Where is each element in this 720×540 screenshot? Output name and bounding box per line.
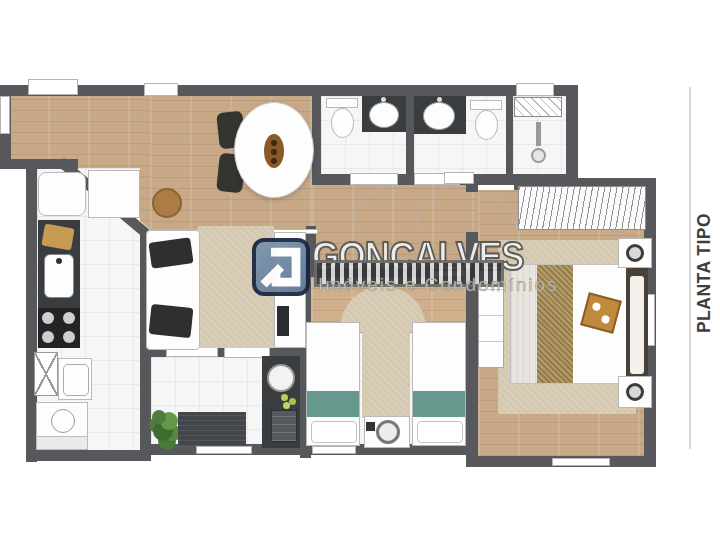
washer [36, 402, 88, 438]
shower-rod [536, 122, 541, 146]
watermark-subtitle: Imóveis e Condomínios [318, 274, 608, 300]
bed-pillow [417, 421, 463, 443]
window-master-bottom [552, 458, 610, 466]
side-divider-line [689, 87, 691, 449]
bath1-faucet [381, 97, 386, 102]
headboard-pillow [630, 276, 644, 374]
lemons [281, 394, 288, 401]
stove [38, 308, 80, 348]
burner [42, 331, 54, 343]
kitchen-faucet [56, 258, 62, 264]
laundry-sink [58, 358, 92, 400]
grill-sink [267, 364, 295, 392]
wall-service-bottom [26, 450, 151, 461]
washer-lid [51, 409, 75, 433]
wall-service-terrace [140, 354, 151, 456]
tray-cup [592, 302, 602, 312]
sofa-cushion [149, 304, 194, 338]
bath1-sink [369, 102, 399, 128]
door-entry [444, 172, 474, 184]
shower-box [514, 97, 562, 117]
fridge [38, 172, 86, 216]
window-bedroom2-bottom [312, 446, 356, 454]
wall-bath-divider2 [506, 94, 513, 178]
toilet1-tank [326, 98, 358, 108]
table-lamp [376, 420, 400, 444]
table-lamp [626, 244, 644, 262]
bath2-sink [423, 102, 455, 130]
toilet1-bowl [331, 108, 354, 138]
door-bathroom1 [350, 173, 398, 185]
gas-cabinet [34, 352, 58, 396]
round-ottoman [152, 188, 182, 218]
bed-blanket-teal [307, 391, 359, 417]
twin-bed-left [306, 322, 360, 446]
wall-bath1-left [312, 92, 321, 178]
laundry-basin [63, 364, 89, 396]
wall-top [8, 85, 578, 96]
wall-bath-right [566, 85, 578, 185]
window-deck-top2 [144, 83, 178, 96]
watermark-logo-glyph [256, 242, 306, 292]
mini-fridge [271, 410, 297, 442]
bath2-faucet [437, 97, 442, 102]
burner [63, 331, 75, 343]
tv [277, 306, 289, 336]
pantry-cabinet [88, 170, 140, 218]
toilet2-tank [470, 100, 502, 110]
centerpiece-dots [271, 140, 277, 146]
bed-pillow [311, 421, 357, 443]
tray-cup [601, 314, 611, 324]
floor-mat [178, 412, 246, 446]
floor-plan-image: GONÇALVES Imóveis e Condomínios PLANTA T… [0, 0, 720, 540]
burner [63, 312, 75, 324]
wall-bath-divider1 [406, 94, 414, 178]
area-rug-runner [362, 324, 410, 418]
watermark-logo [252, 238, 310, 296]
wardrobe [518, 186, 646, 230]
plant [152, 410, 166, 424]
window-deck-top [28, 79, 78, 95]
window-deck-left [0, 96, 10, 134]
twin-bed-right [412, 322, 466, 446]
shower-head [531, 148, 546, 163]
planta-tipo-label: PLANTA TIPO [694, 208, 718, 338]
window-shower-top [516, 83, 554, 96]
burner [42, 312, 54, 324]
window-terrace-bottom [196, 446, 252, 454]
service-counter [36, 436, 88, 450]
table-lamp [626, 383, 644, 401]
toilet2-bowl [475, 110, 498, 140]
nightstand-decor [366, 422, 375, 431]
bed-blanket-teal [413, 391, 465, 417]
